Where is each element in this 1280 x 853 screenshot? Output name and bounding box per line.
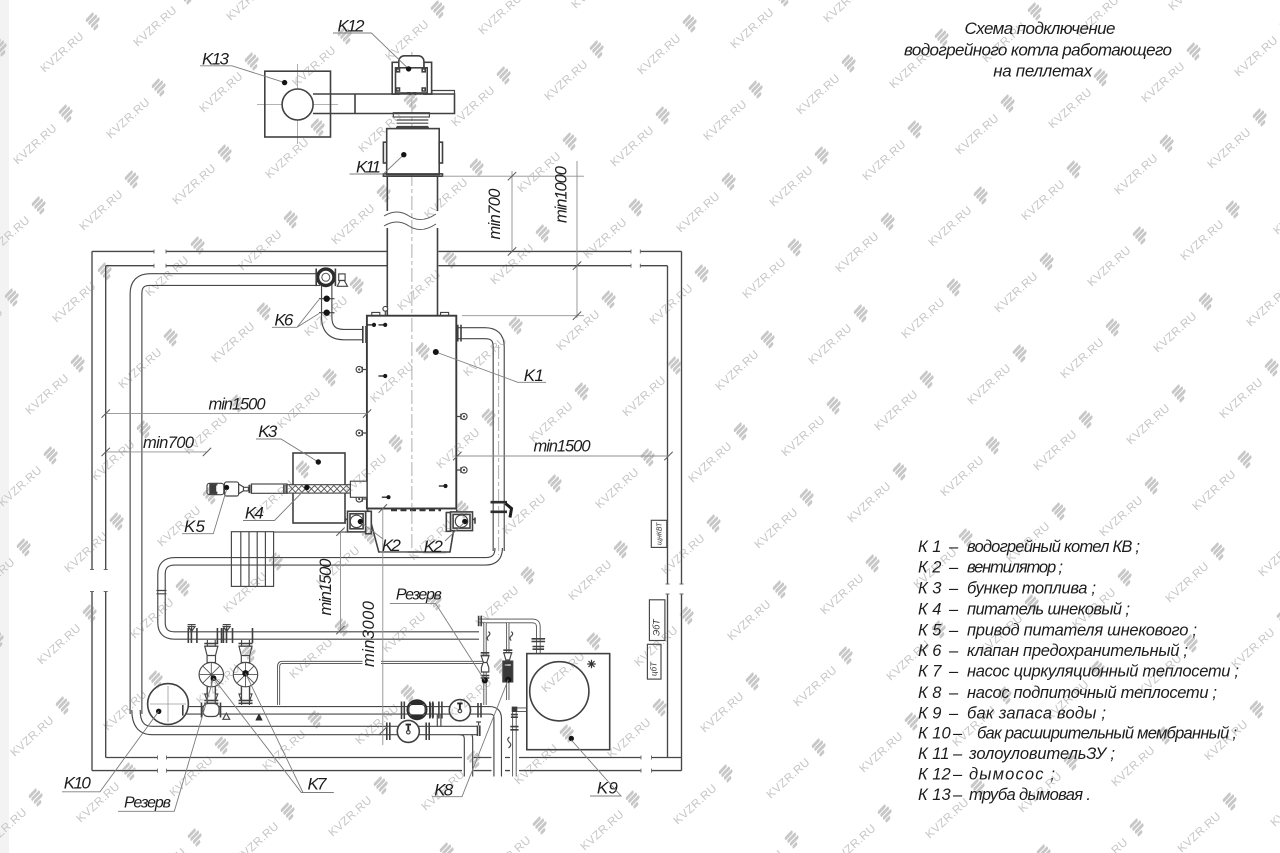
svg-text:К 4: К 4 <box>918 601 942 619</box>
svg-text:K3: K3 <box>258 422 278 441</box>
svg-text:щнКВТ: щнКВТ <box>657 522 664 545</box>
svg-text:K6: K6 <box>274 311 294 330</box>
svg-text:min700: min700 <box>486 188 504 240</box>
svg-text:–: – <box>952 766 963 784</box>
svg-text:К 11: К 11 <box>918 745 949 763</box>
svg-text:–: – <box>948 601 959 619</box>
svg-text:min1000: min1000 <box>553 165 571 223</box>
svg-text:К 13: К 13 <box>918 786 951 804</box>
svg-text:К 8: К 8 <box>918 684 942 702</box>
svg-text:min3000: min3000 <box>360 600 378 667</box>
svg-text:К 7: К 7 <box>918 663 942 681</box>
svg-text:К 1: К 1 <box>918 538 942 556</box>
svg-text:–: – <box>948 579 959 597</box>
svg-text:клапан предохранительный ;: клапан предохранительный ; <box>967 642 1188 660</box>
svg-text:на пеллетах: на пеллетах <box>993 62 1093 81</box>
svg-text:–: – <box>948 684 959 702</box>
svg-text:–: – <box>948 622 959 640</box>
svg-text:К 5: К 5 <box>918 622 942 640</box>
svg-text:min1500: min1500 <box>534 438 592 456</box>
svg-text:К 10: К 10 <box>918 725 951 743</box>
svg-text:K10: K10 <box>64 774 92 793</box>
svg-text:водогрейный котел КВ ;: водогрейный котел КВ ; <box>967 538 1140 556</box>
svg-text:дымосос ;: дымосос ; <box>969 766 1055 784</box>
svg-text:К 9: К 9 <box>918 704 942 722</box>
svg-text:насос циркуляционный теплосети: насос циркуляционный теплосети ; <box>967 663 1239 681</box>
svg-text:К 12: К 12 <box>918 766 951 784</box>
svg-text:бак расширительный мембранный: бак расширительный мембранный ; <box>977 725 1237 743</box>
svg-text:цбТ: цбТ <box>650 661 659 676</box>
svg-text:золоуловительЗУ ;: золоуловительЗУ ; <box>968 745 1115 763</box>
svg-text:–: – <box>948 663 959 681</box>
svg-text:–: – <box>948 642 959 660</box>
svg-text:Резерв: Резерв <box>124 795 171 812</box>
svg-text:–: – <box>948 704 959 722</box>
svg-text:ЭбТ: ЭбТ <box>652 618 662 636</box>
svg-text:K7: K7 <box>308 775 328 794</box>
